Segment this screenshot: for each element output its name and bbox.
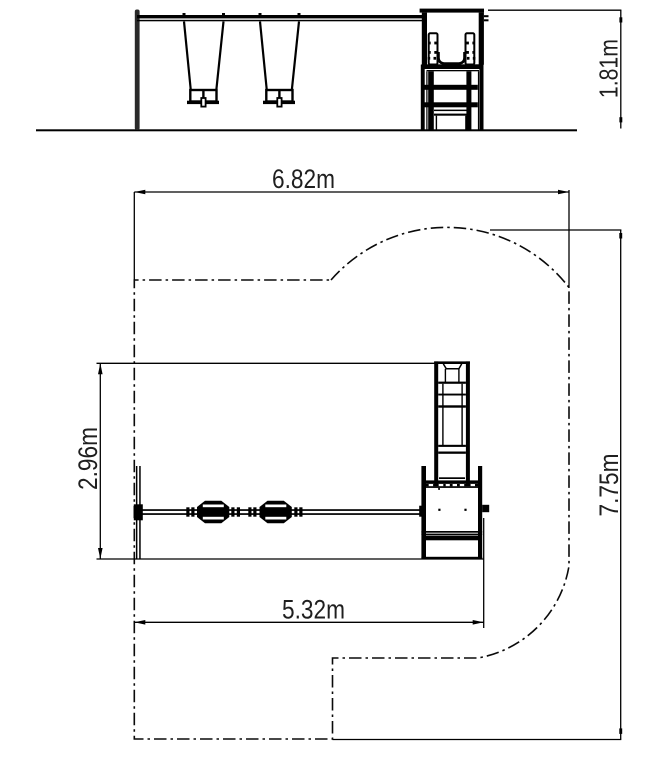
svg-text:6.82m: 6.82m <box>272 164 335 194</box>
svg-text:7.75m: 7.75m <box>594 454 624 517</box>
svg-text:5.32m: 5.32m <box>282 595 345 625</box>
svg-text:1.81m: 1.81m <box>594 39 624 98</box>
svg-text:2.96m: 2.96m <box>73 427 103 490</box>
